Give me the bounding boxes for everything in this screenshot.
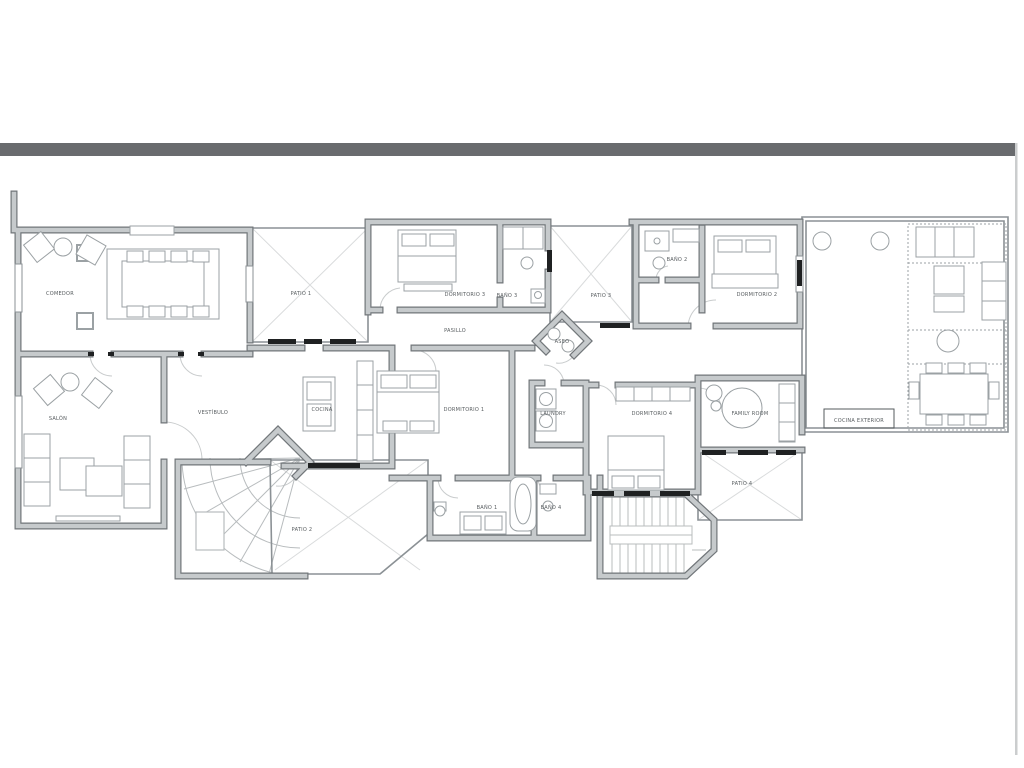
dining-table bbox=[107, 249, 219, 319]
outdoor-armchair bbox=[934, 266, 964, 294]
label-bano3: BAÑO 3 bbox=[497, 292, 518, 299]
kitchen-cabinets bbox=[357, 361, 373, 461]
window-salon-left bbox=[15, 396, 22, 468]
label-dormitorio3: DORMITORIO 3 bbox=[445, 292, 486, 298]
toilet bbox=[653, 257, 665, 269]
label-cocina-exterior: COCINA EXTERIOR bbox=[834, 418, 884, 424]
right-frame-line bbox=[1015, 143, 1018, 755]
outdoor-round-table bbox=[937, 330, 959, 352]
sink bbox=[540, 484, 556, 494]
planter bbox=[871, 232, 889, 250]
sink bbox=[521, 257, 533, 269]
comedor-lounge-chairs bbox=[24, 232, 106, 265]
main-staircase bbox=[610, 496, 708, 574]
label-laundry: LAUNDRY bbox=[540, 411, 566, 417]
terrace-furniture bbox=[813, 224, 1006, 430]
bano2-fixtures bbox=[645, 229, 699, 269]
label-vestibulo: VESTÍBULO bbox=[198, 409, 228, 416]
label-salon: SALÓN bbox=[49, 415, 67, 422]
floor-plan-page: { "page": { "background": "#ffffff", "to… bbox=[0, 0, 1024, 768]
window-comedor-left bbox=[15, 264, 22, 312]
bano3-fixtures bbox=[503, 227, 545, 303]
sofa bbox=[124, 436, 150, 508]
closet bbox=[616, 387, 690, 401]
sink bbox=[673, 229, 699, 242]
label-patio2: PATIO 2 bbox=[292, 527, 313, 533]
comedor-furniture bbox=[24, 226, 219, 329]
label-patio4: PATIO 4 bbox=[732, 481, 753, 487]
label-dormitorio2: DORMITORIO 2 bbox=[737, 292, 778, 298]
dormitorio4-furniture bbox=[608, 387, 690, 490]
outdoor-sofa bbox=[916, 227, 974, 257]
dormitorio3-furniture bbox=[398, 230, 456, 291]
bed-bench bbox=[404, 284, 452, 291]
round-table bbox=[722, 388, 762, 428]
label-dormitorio1: DORMITORIO 1 bbox=[444, 407, 485, 413]
floor-plan-canvas: COMEDOR SALÓN VESTÍBULO COCINA PASILLO A… bbox=[0, 0, 1024, 768]
label-aseo: ASEO bbox=[555, 339, 570, 345]
label-pasillo: PASILLO bbox=[444, 328, 466, 334]
dormitorio1-furniture bbox=[377, 371, 439, 433]
spiral-staircase bbox=[182, 458, 300, 576]
label-patio1: PATIO 1 bbox=[291, 291, 312, 297]
planter bbox=[813, 232, 831, 250]
window-comedor-right bbox=[246, 266, 253, 302]
dormitorio2-furniture bbox=[712, 236, 778, 288]
label-bano4: BAÑO 4 bbox=[541, 504, 562, 511]
label-comedor: COMEDOR bbox=[46, 291, 74, 297]
label-bano1: BAÑO 1 bbox=[477, 504, 498, 511]
salon-furniture bbox=[24, 373, 150, 521]
toilet bbox=[435, 506, 445, 516]
label-family-room: FAMILY ROOM bbox=[732, 411, 769, 417]
laundry-appliances bbox=[536, 389, 556, 431]
label-bano2: BAÑO 2 bbox=[667, 256, 688, 263]
shelving bbox=[779, 384, 795, 442]
label-cocina: COCINA bbox=[311, 407, 332, 413]
top-bar bbox=[0, 143, 1017, 156]
outdoor-side-sofa bbox=[982, 262, 1006, 320]
label-patio3: PATIO 3 bbox=[591, 293, 612, 299]
outdoor-dining-set bbox=[909, 363, 999, 425]
console-table bbox=[56, 516, 120, 521]
label-dormitorio4: DORMITORIO 4 bbox=[632, 411, 673, 417]
sofa bbox=[24, 434, 50, 506]
